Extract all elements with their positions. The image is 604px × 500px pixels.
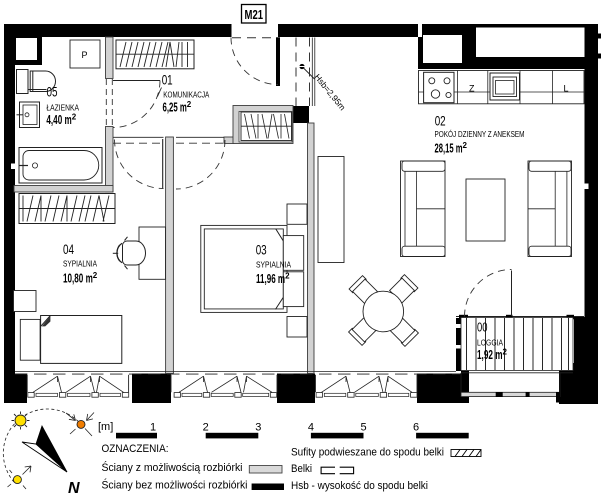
- svg-text:LOGGIA: LOGGIA: [477, 338, 503, 348]
- svg-text:[m]: [m]: [98, 421, 113, 433]
- svg-text:SYPIALNIA: SYPIALNIA: [63, 259, 97, 269]
- svg-text:Sufity podwieszane do spodu be: Sufity podwieszane do spodu belki: [291, 447, 444, 459]
- svg-text:5: 5: [360, 422, 366, 434]
- svg-text:04: 04: [63, 242, 74, 257]
- svg-text:4: 4: [308, 422, 314, 434]
- svg-text:05: 05: [47, 85, 58, 100]
- svg-text:3: 3: [255, 422, 261, 434]
- svg-text:L: L: [564, 84, 569, 94]
- svg-text:KOMUNIKACJA: KOMUNIKACJA: [163, 90, 209, 100]
- svg-text:Belki: Belki: [291, 463, 312, 475]
- svg-text:6: 6: [413, 422, 419, 434]
- svg-text:00: 00: [477, 321, 488, 335]
- svg-text:Ściany z możliwością rozbiórki: Ściany z możliwością rozbiórki: [102, 461, 243, 474]
- svg-text:N: N: [68, 480, 80, 497]
- svg-text:POKÓJ DZIENNY Z ANEKSEM: POKÓJ DZIENNY Z ANEKSEM: [435, 129, 525, 139]
- svg-text:03: 03: [256, 243, 267, 258]
- svg-text:2: 2: [203, 422, 209, 434]
- svg-text:SYPIALNIA: SYPIALNIA: [256, 260, 291, 270]
- svg-text:11,96 m2: 11,96 m2: [256, 271, 290, 286]
- svg-text:Hsb - wysokość do spodu belki: Hsb - wysokość do spodu belki: [291, 480, 428, 492]
- svg-text:OZNACZENIA:: OZNACZENIA:: [102, 443, 169, 455]
- svg-text:Ściany bez możliwości rozbiórk: Ściany bez możliwości rozbiórki: [102, 479, 248, 492]
- svg-text:10,80 m2: 10,80 m2: [63, 271, 98, 286]
- svg-text:02: 02: [435, 114, 446, 129]
- svg-text:P: P: [82, 50, 88, 60]
- svg-text:Z: Z: [469, 84, 475, 94]
- svg-text:1: 1: [150, 422, 156, 434]
- svg-text:01: 01: [162, 73, 173, 88]
- svg-text:M21: M21: [245, 7, 264, 22]
- svg-text:ŁAZIENKA: ŁAZIENKA: [46, 103, 79, 113]
